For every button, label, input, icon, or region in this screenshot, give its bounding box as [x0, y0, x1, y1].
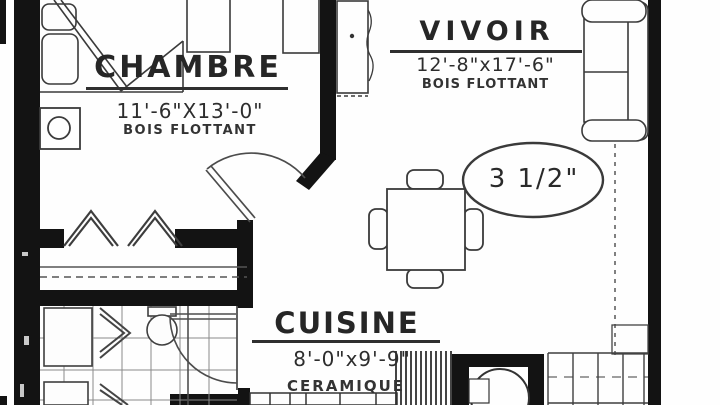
closet-bifold-doors	[64, 211, 182, 246]
lamp-icon	[48, 117, 70, 139]
cuisine-underline	[252, 340, 440, 343]
utility-shelf	[469, 379, 489, 403]
room-flooring-cuisine: CERAMIQUE	[252, 377, 440, 395]
room-label-chambre: CHAMBRE	[88, 50, 288, 85]
hall-header-lines	[40, 267, 247, 277]
door-leaf	[211, 166, 255, 218]
sofa-arm	[582, 0, 646, 22]
nightstand	[40, 108, 80, 149]
hall-wall	[175, 229, 245, 248]
bathroom-vanity	[44, 308, 92, 405]
room-dimensions-cuisine: 8'-0"x9'-9"	[238, 347, 466, 371]
pillow	[42, 34, 78, 84]
bathroom-bifold-doors	[100, 308, 130, 405]
media-unit-outline	[337, 1, 368, 93]
dining-table	[387, 189, 465, 270]
dining-chair	[407, 269, 443, 288]
wardrobe	[283, 0, 319, 53]
bifold-door-icon	[100, 314, 124, 352]
sofa-arm	[582, 120, 646, 141]
nightstand-top	[40, 108, 80, 149]
utility-closet	[469, 369, 529, 405]
unit-size-badge-label: 3 1/2"	[468, 164, 600, 194]
knob-dot	[350, 34, 354, 38]
bottom-wall-corner	[238, 388, 250, 405]
margin-wall-sliver	[0, 0, 6, 44]
wardrobe-outline	[283, 0, 319, 53]
hall-wall-stub	[40, 229, 64, 248]
room-label-cuisine: CUISINE	[254, 306, 440, 340]
room-flooring-chambre: BOIS FLOTTANT	[85, 123, 295, 138]
door-arc	[207, 153, 305, 178]
media-unit	[337, 1, 373, 96]
dresser	[187, 0, 230, 52]
toilet	[147, 307, 177, 345]
door-leaf	[206, 170, 250, 222]
margin-wall-sliver-bottom	[0, 396, 7, 405]
dining-table-set	[369, 170, 483, 288]
floor-plan-canvas: CHAMBRE 11'-6"X13'-0" BOIS FLOTTANT VIVO…	[0, 0, 720, 405]
bedroom-door-swing	[206, 153, 305, 222]
sofa-seat	[584, 16, 630, 122]
right-wall	[648, 0, 661, 405]
room-dimensions-vivoir: 12'-8"x17'-6"	[383, 54, 588, 76]
room-dimensions-chambre: 11'-6"X13'-0"	[85, 99, 295, 123]
chambre-underline	[86, 87, 288, 90]
vanity-counter	[44, 308, 92, 366]
utility-closet-right-wall	[528, 354, 544, 405]
kitchen-tile-counter	[548, 353, 648, 405]
bathroom-top-wall	[40, 290, 240, 306]
room-label-vivoir: VIVOIR	[392, 16, 582, 47]
angled-door-wall	[296, 152, 336, 190]
appliance-outline	[612, 325, 648, 354]
vanity-cabinet	[44, 382, 88, 405]
dining-chair	[407, 170, 443, 189]
vivoir-underline	[390, 50, 582, 53]
room-flooring-vivoir: BOIS FLOTTANT	[383, 77, 588, 92]
bedroom-divider-wall	[320, 0, 336, 160]
dining-chair	[464, 209, 483, 250]
dining-chair	[369, 209, 388, 249]
dresser-outline	[187, 0, 230, 52]
bifold-door-icon	[100, 384, 128, 405]
sofa	[582, 0, 648, 141]
